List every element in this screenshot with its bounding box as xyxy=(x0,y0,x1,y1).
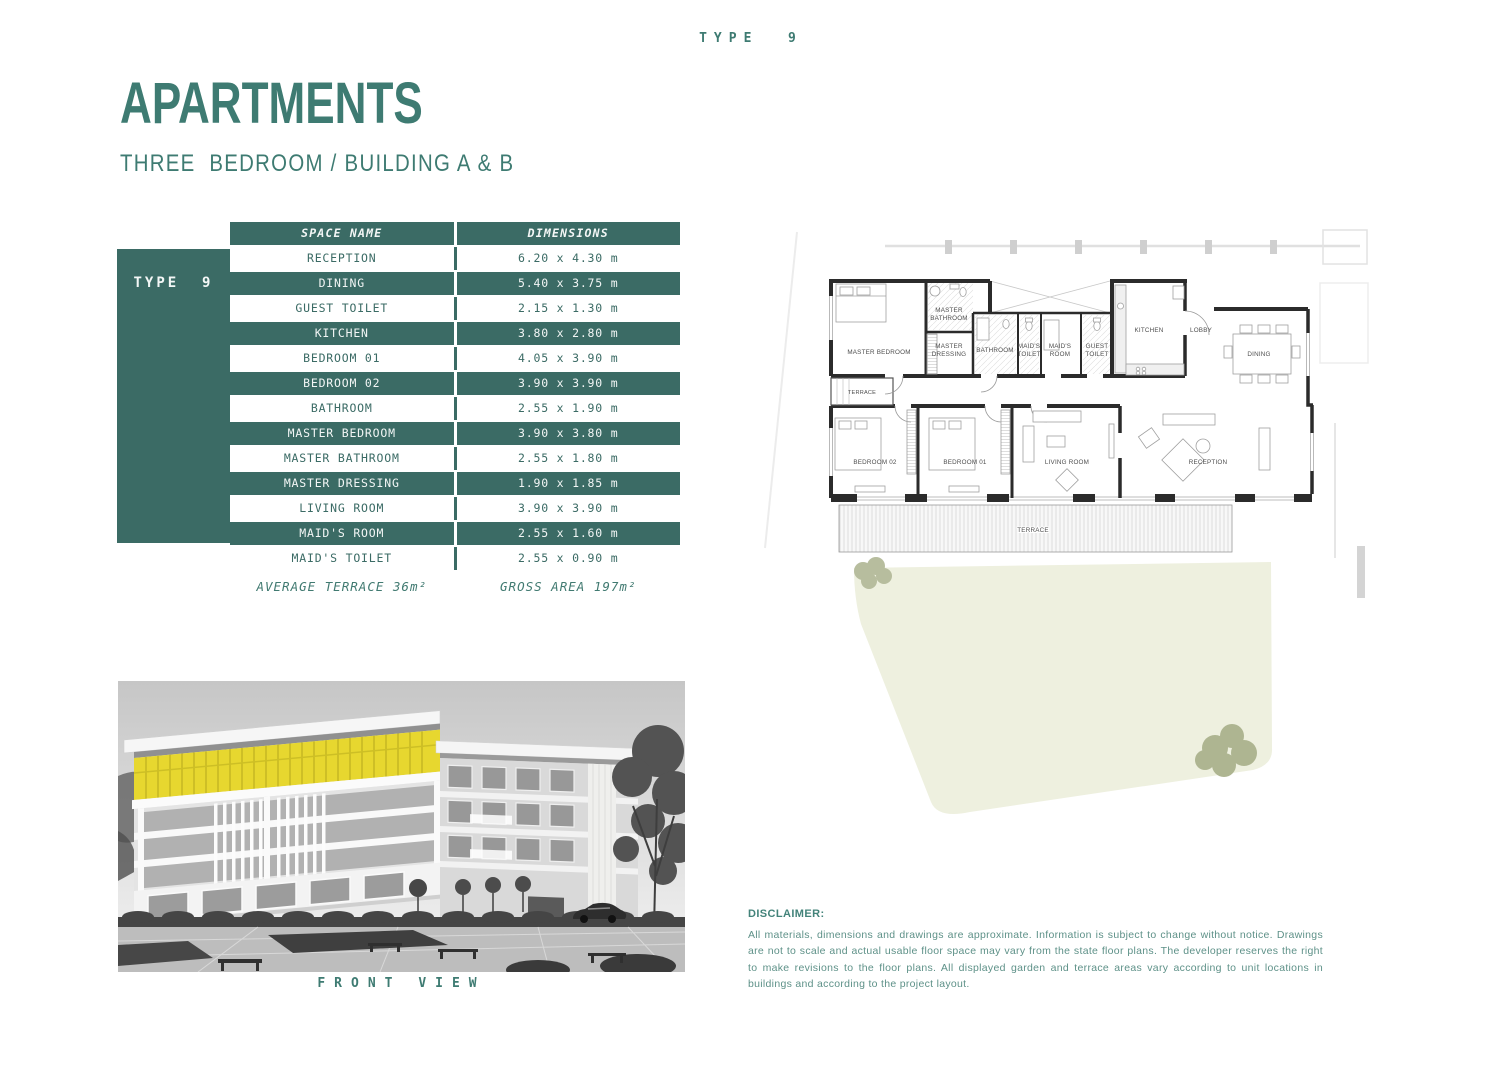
space-name: GUEST TOILET xyxy=(230,297,454,320)
table-row: BATHROOM2.55 x 1.90 m xyxy=(230,397,680,420)
room-label: ROOM xyxy=(1050,351,1070,358)
column-header-dimensions: DIMENSIONS xyxy=(457,222,681,245)
room-label: MAID'S xyxy=(1018,343,1040,350)
space-name: MASTER DRESSING xyxy=(230,472,454,495)
room-label: TERRACE xyxy=(1017,527,1049,534)
space-dims: 3.90 x 3.80 m xyxy=(457,422,681,445)
page-subtitle: THREE BEDROOM / BUILDING A & B xyxy=(120,150,514,178)
space-name: MASTER BATHROOM xyxy=(230,447,454,470)
room-label: GUEST xyxy=(1086,343,1109,350)
room-label: BEDROOM 02 xyxy=(853,459,897,466)
space-dims: 5.40 x 3.75 m xyxy=(457,272,681,295)
space-name: BEDROOM 01 xyxy=(230,347,454,370)
room-label: LOBBY xyxy=(1190,327,1213,334)
brochure-page: TYPE 9 APARTMENTS THREE BEDROOM / BUILDI… xyxy=(0,0,1502,1072)
space-dims: 3.90 x 3.90 m xyxy=(457,497,681,520)
disclaimer: DISCLAIMER: All materials, dimensions an… xyxy=(748,908,1323,992)
space-name: RECEPTION xyxy=(230,247,454,270)
space-name: BEDROOM 02 xyxy=(230,372,454,395)
room-label: BATHROOM xyxy=(976,347,1014,354)
space-name: DINING xyxy=(230,272,454,295)
space-dims: 2.55 x 0.90 m xyxy=(457,547,681,570)
table-row: MASTER BEDROOM3.90 x 3.80 m xyxy=(230,422,680,445)
table-row: MASTER DRESSING1.90 x 1.85 m xyxy=(230,472,680,495)
garden-area xyxy=(854,562,1272,814)
space-dims: 4.05 x 3.90 m xyxy=(457,347,681,370)
table-row: KITCHEN3.80 x 2.80 m xyxy=(230,322,680,345)
table-row: MAID'S TOILET2.55 x 0.90 m xyxy=(230,547,680,570)
front-view-caption: FRONT VIEW xyxy=(118,976,685,991)
space-dims: 1.90 x 1.85 m xyxy=(457,472,681,495)
room-label: LIVING ROOM xyxy=(1045,459,1089,466)
room-label: DRESSING xyxy=(932,351,967,358)
space-dims: 2.55 x 1.90 m xyxy=(457,397,681,420)
space-name: KITCHEN xyxy=(230,322,454,345)
type-side-badge-label: TYPE 9 xyxy=(117,275,230,291)
dimensions-table: SPACE NAME DIMENSIONS RECEPTION6.20 x 4.… xyxy=(230,222,680,594)
room-label: MASTER xyxy=(935,343,963,350)
space-dims: 2.55 x 1.80 m xyxy=(457,447,681,470)
room-label: DINING xyxy=(1247,351,1270,358)
table-row: DINING5.40 x 3.75 m xyxy=(230,272,680,295)
building-render-illustration xyxy=(118,681,685,972)
floor-plan: MASTER BEDROOM MASTER BATHROOM MASTER DR… xyxy=(735,228,1370,840)
space-dims: 2.55 x 1.60 m xyxy=(457,522,681,545)
table-row: MAID'S ROOM2.55 x 1.60 m xyxy=(230,522,680,545)
page-title: APARTMENTS xyxy=(120,70,423,137)
room-label: MASTER BEDROOM xyxy=(847,349,910,356)
room-label: TOILET xyxy=(1017,351,1040,358)
table-footer: AVERAGE TERRACE 36m² GROSS AREA 197m² xyxy=(230,579,680,594)
room-label: BEDROOM 01 xyxy=(943,459,987,466)
gross-area-note: GROSS AREA 197m² xyxy=(457,579,681,594)
space-dims: 3.80 x 2.80 m xyxy=(457,322,681,345)
room-label: MASTER xyxy=(935,307,963,314)
space-name: MAID'S TOILET xyxy=(230,547,454,570)
room-label: KITCHEN xyxy=(1134,327,1163,334)
table-row: MASTER BATHROOM2.55 x 1.80 m xyxy=(230,447,680,470)
page-type-label: TYPE 9 xyxy=(0,31,1502,46)
disclaimer-body: All materials, dimensions and drawings a… xyxy=(748,927,1323,992)
table-row: GUEST TOILET2.15 x 1.30 m xyxy=(230,297,680,320)
room-label: TOILET xyxy=(1085,351,1108,358)
space-dims: 6.20 x 4.30 m xyxy=(457,247,681,270)
space-name: BATHROOM xyxy=(230,397,454,420)
floor-plan-drawing: MASTER BEDROOM MASTER BATHROOM MASTER DR… xyxy=(735,228,1370,840)
space-dims: 3.90 x 3.90 m xyxy=(457,372,681,395)
space-dims: 2.15 x 1.30 m xyxy=(457,297,681,320)
table-header-row: SPACE NAME DIMENSIONS xyxy=(230,222,680,245)
room-label: BATHROOM xyxy=(930,315,968,322)
type-side-badge: TYPE 9 xyxy=(117,249,230,543)
average-terrace-note: AVERAGE TERRACE 36m² xyxy=(230,579,454,594)
space-name: MAID'S ROOM xyxy=(230,522,454,545)
room-label: TERRACE xyxy=(848,390,876,396)
room-label: MAID'S xyxy=(1049,343,1071,350)
space-name: LIVING ROOM xyxy=(230,497,454,520)
table-row: BEDROOM 014.05 x 3.90 m xyxy=(230,347,680,370)
column-header-space-name: SPACE NAME xyxy=(230,222,454,245)
table-row: LIVING ROOM3.90 x 3.90 m xyxy=(230,497,680,520)
disclaimer-heading: DISCLAIMER: xyxy=(748,908,1323,920)
space-name: MASTER BEDROOM xyxy=(230,422,454,445)
room-label: RECEPTION xyxy=(1189,459,1228,466)
table-row: BEDROOM 023.90 x 3.90 m xyxy=(230,372,680,395)
table-row: RECEPTION6.20 x 4.30 m xyxy=(230,247,680,270)
building-photo xyxy=(118,681,685,972)
